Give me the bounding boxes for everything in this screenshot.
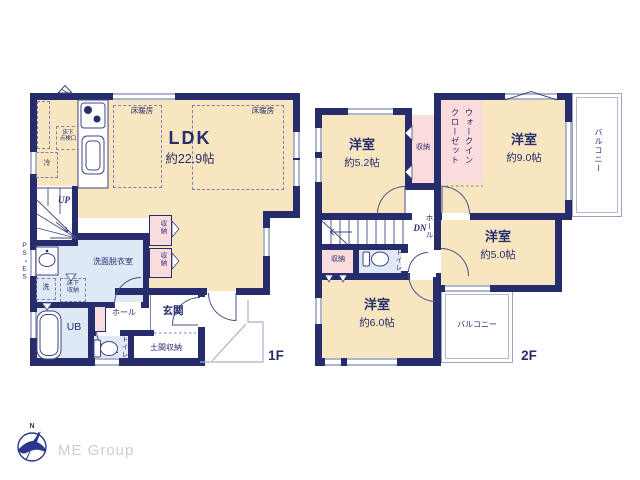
wall <box>490 285 562 292</box>
toilet-2f-door-arc <box>408 252 428 272</box>
closet-2f-north-label: 収納 <box>409 144 437 152</box>
window <box>30 312 37 338</box>
window <box>348 108 393 115</box>
floor-heating-label-right: 床暖房 <box>245 107 281 116</box>
bedroom-52-label: 洋室 <box>332 138 392 153</box>
floor2-label: 2F <box>514 348 544 364</box>
entrance-label: 玄関 <box>153 305 193 317</box>
floor1-label: 1F <box>262 348 290 364</box>
wall <box>405 183 441 190</box>
compass-logo-icon <box>18 431 46 461</box>
pantry-box <box>37 101 50 149</box>
bedroom-60-label: 洋室 <box>347 298 407 313</box>
window <box>315 298 322 324</box>
ldk-size-label: 約22.9帖 <box>150 152 230 166</box>
ldk-label: LDK <box>155 128 225 149</box>
wall <box>315 213 412 220</box>
window <box>565 122 572 200</box>
bedroom-52-size: 約5.2帖 <box>332 157 392 169</box>
wall <box>72 233 149 240</box>
wall <box>134 330 154 336</box>
wall <box>30 240 78 246</box>
wall <box>555 213 562 292</box>
stairs-2f-icon <box>322 220 403 244</box>
wic-label: ウォークインクローゼット <box>448 108 476 170</box>
wall <box>434 218 441 250</box>
company-logo-text: ME Group <box>58 442 178 459</box>
window <box>315 128 322 152</box>
hall-2f-label: ホール <box>420 214 433 244</box>
bedroom-50-label: 洋室 <box>468 230 528 245</box>
ldk-door-arc <box>208 293 236 321</box>
wall <box>198 327 205 366</box>
balcony-east-label: バルコニー <box>589 128 603 188</box>
floorplan-canvas: LDK 約22.9帖 床暖房 床暖房 床下 点検口 冷 UP PS・ES 洗面脱… <box>0 0 640 480</box>
window <box>263 228 270 256</box>
toilet-2f-label: トイレ <box>390 249 401 275</box>
window <box>347 358 397 366</box>
wall <box>236 288 270 295</box>
hall-1f-label: ホール <box>104 308 144 317</box>
window <box>30 250 37 276</box>
underfloor-access-label: 床下 点検口 <box>57 130 79 143</box>
bedroom-90-size: 約9.0帖 <box>494 152 554 164</box>
bedroom-60-size: 約6.0帖 <box>347 317 407 329</box>
closet-2f-south-label: 収納 <box>324 256 352 264</box>
entrance-step-line <box>150 295 151 330</box>
bedroom-90-label: 洋室 <box>494 133 554 148</box>
unit-bath-label: UB <box>62 321 86 333</box>
compass-north-label: N <box>27 423 37 431</box>
window <box>113 93 175 100</box>
wall <box>198 288 205 297</box>
wall <box>401 244 408 253</box>
window <box>293 132 300 158</box>
washer-label: 洗 <box>36 284 56 292</box>
floor-heating-label-left: 床暖房 <box>124 107 160 116</box>
underfloor-storage-label: 床下 収納 <box>62 281 84 295</box>
window <box>325 358 341 366</box>
window <box>505 93 557 100</box>
pipe-space-label: PS・ES <box>17 242 28 288</box>
balcony-south-label: バルコニー <box>448 320 506 329</box>
wall <box>353 247 359 273</box>
washroom-label: 洗面脱衣室 <box>84 257 142 266</box>
closet-1f-upper-label: 収納 <box>155 220 166 242</box>
closet-1f-lower-label: 収納 <box>155 252 166 274</box>
toilet-1f-label: トイレ <box>116 336 127 362</box>
entrance-storage-label: 土間収納 <box>138 343 194 352</box>
window <box>445 285 490 292</box>
wall <box>434 93 441 218</box>
bedroom-50-size: 約5.0帖 <box>468 249 528 261</box>
window <box>293 160 300 186</box>
window <box>315 158 322 182</box>
fridge-label: 冷 <box>36 160 58 168</box>
stairs-up-label: UP <box>52 195 76 205</box>
